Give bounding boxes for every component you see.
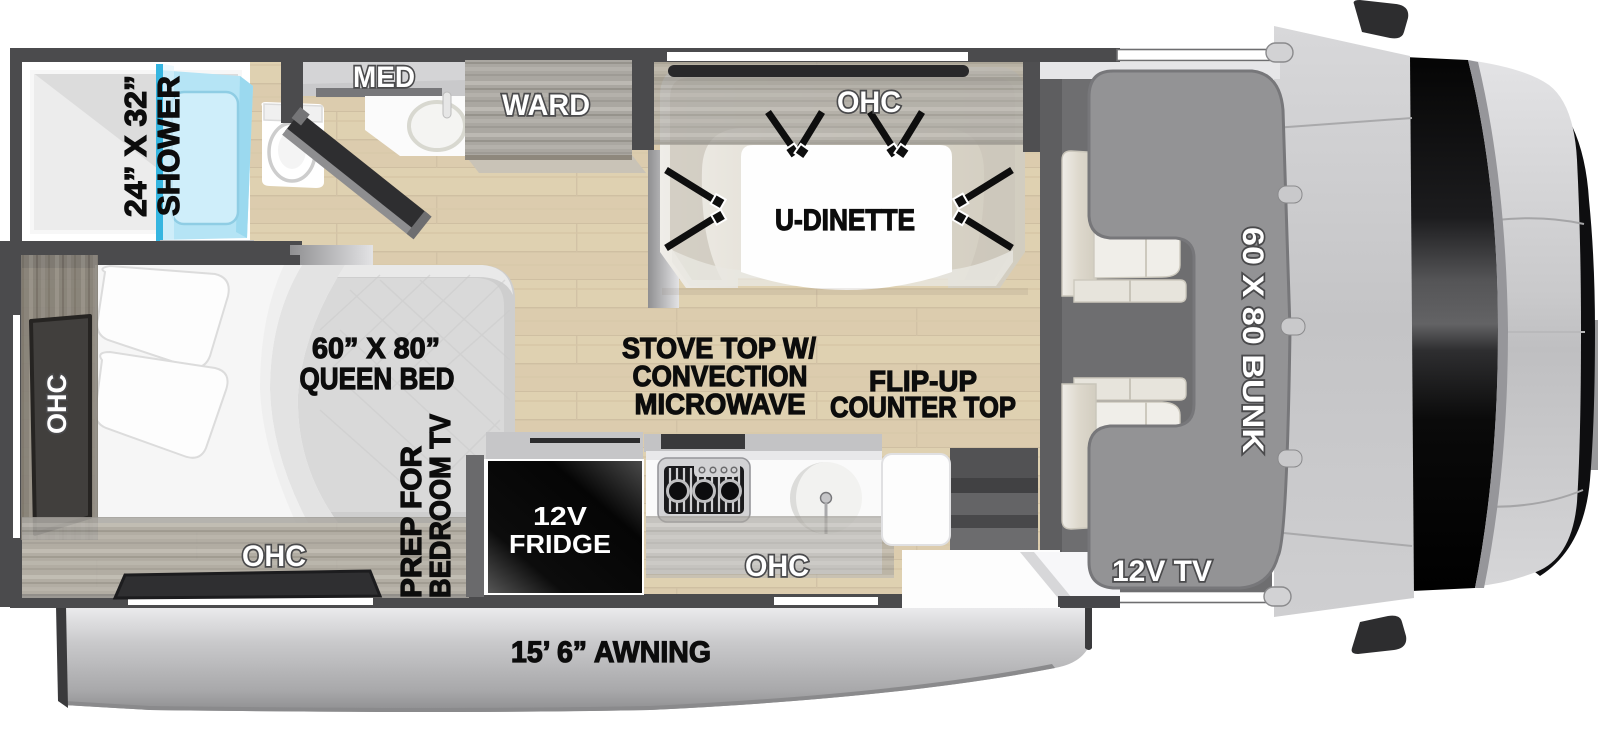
svg-text:SHOWER: SHOWER <box>151 76 186 216</box>
svg-text:12V: 12V <box>533 501 588 531</box>
svg-text:U-DINETTE: U-DINETTE <box>775 204 915 237</box>
svg-text:OHC: OHC <box>837 86 901 119</box>
svg-text:12V TV: 12V TV <box>1112 555 1212 588</box>
svg-text:FRIDGE: FRIDGE <box>509 529 611 559</box>
svg-text:QUEEN BED: QUEEN BED <box>300 361 455 396</box>
svg-text:60 X 80 BUNK: 60 X 80 BUNK <box>1236 227 1269 453</box>
svg-text:15’ 6” AWNING: 15’ 6” AWNING <box>511 636 711 669</box>
svg-text:OHC: OHC <box>242 540 306 573</box>
svg-text:24” X 32”: 24” X 32” <box>118 75 153 217</box>
svg-text:OHC: OHC <box>745 550 809 583</box>
svg-text:MED: MED <box>353 61 415 94</box>
svg-text:MICROWAVE: MICROWAVE <box>635 389 806 421</box>
svg-text:BEDROOM TV: BEDROOM TV <box>425 413 457 598</box>
svg-text:OHC: OHC <box>42 374 72 434</box>
svg-text:COUNTER TOP: COUNTER TOP <box>830 392 1016 424</box>
svg-text:WARD: WARD <box>502 89 590 122</box>
svg-text:PREP FOR: PREP FOR <box>396 446 428 598</box>
